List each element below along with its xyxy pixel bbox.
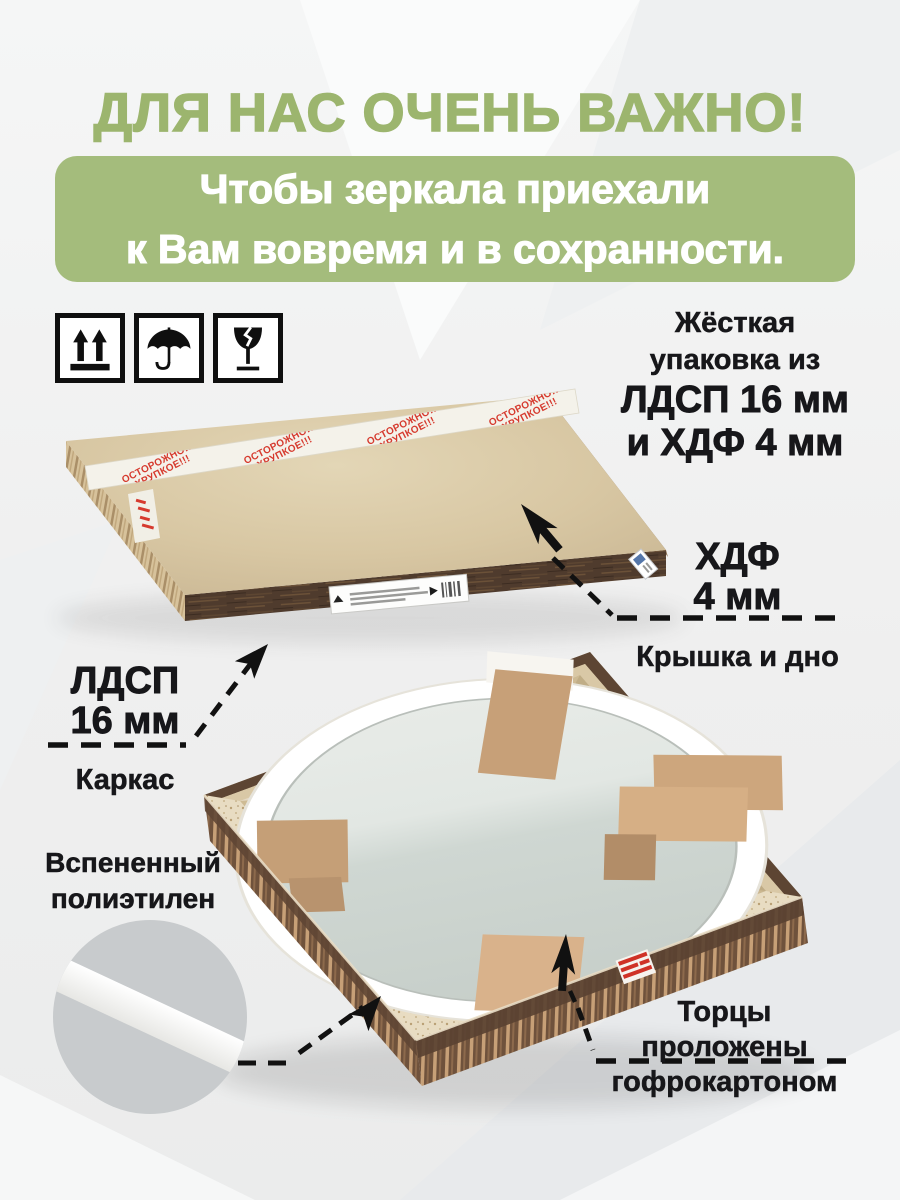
keep-dry-glyph bbox=[141, 320, 197, 376]
callout-hdf: ХДФ 4 мм Крышка и дно bbox=[615, 537, 860, 674]
callout-edges: Торцы проложены гофрокартоном bbox=[597, 995, 852, 1100]
subtitle-banner: Чтобы зеркала приехали к Вам вовремя и в… bbox=[55, 156, 855, 282]
edges-line2: проложены bbox=[597, 1030, 852, 1065]
callout-ldsp: ЛДСП 16 мм Каркас bbox=[30, 661, 220, 797]
edges-line1: Торцы bbox=[597, 995, 852, 1030]
page-title: ДЛЯ НАС ОЧЕНЬ ВАЖНО! bbox=[0, 82, 900, 144]
keep-dry-icon bbox=[134, 313, 204, 383]
infographic-page: ОСТОРОЖНО!!! ХРУПКОЕ!!! ОСТОРОЖНО!!! ХРУ… bbox=[0, 0, 900, 1200]
fragile-icon bbox=[213, 313, 283, 383]
edges-line3: гофрокартоном bbox=[597, 1065, 852, 1100]
hdf-caption: Крышка и дно bbox=[615, 640, 860, 674]
foam-line2: полиэтилен bbox=[28, 881, 238, 917]
note-line4: и ХДФ 4 мм bbox=[605, 422, 865, 465]
handling-icons bbox=[55, 313, 283, 383]
ldsp-title: ЛДСП bbox=[30, 661, 220, 701]
foam-line1: Вспененный bbox=[28, 845, 238, 881]
closed-package-photo: ОСТОРОЖНО!!! ХРУПКОЕ!!! ОСТОРОЖНО!!! ХРУ… bbox=[55, 383, 685, 644]
fragile-glyph bbox=[220, 320, 276, 376]
packaging-note: Жёсткая упаковка из ЛДСП 16 мм и ХДФ 4 м… bbox=[605, 305, 865, 465]
hdf-title: ХДФ bbox=[615, 537, 860, 577]
hdf-size: 4 мм bbox=[615, 577, 860, 617]
banner-line2: к Вам вовремя и в сохранности. bbox=[55, 226, 855, 273]
this-side-up-icon bbox=[55, 313, 125, 383]
ldsp-caption: Каркас bbox=[30, 763, 220, 797]
ldsp-size: 16 мм bbox=[30, 701, 220, 741]
this-side-up-glyph bbox=[62, 320, 118, 376]
banner-line1: Чтобы зеркала приехали bbox=[55, 166, 855, 213]
note-line3: ЛДСП 16 мм bbox=[605, 379, 865, 422]
note-line2: упаковка из bbox=[605, 342, 865, 379]
note-line1: Жёсткая bbox=[605, 305, 865, 342]
foam-inset bbox=[0, 920, 259, 1200]
callout-foam: Вспененный полиэтилен bbox=[28, 845, 238, 917]
